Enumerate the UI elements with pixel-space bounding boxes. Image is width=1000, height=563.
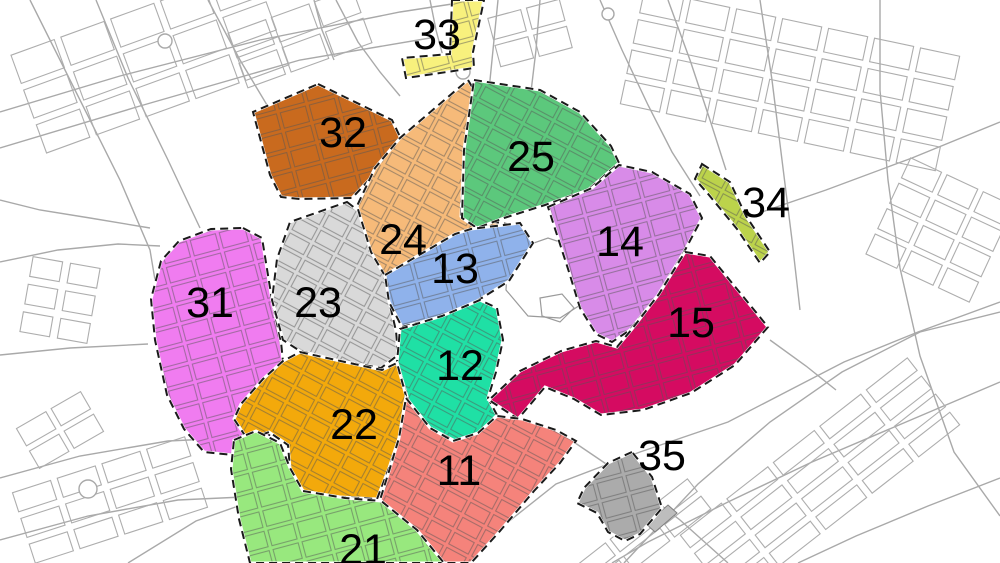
roundabout (158, 34, 172, 48)
city-block-grid (620, 0, 959, 171)
district-map-svg: 312332243325143413121522211135 (0, 0, 1000, 563)
street-line (762, 122, 1000, 212)
region-11-label: 11 (437, 447, 482, 495)
roundabout (602, 8, 614, 20)
city-block-grid (680, 358, 959, 563)
roundabout (79, 480, 97, 498)
region-31-label: 31 (186, 279, 234, 327)
region-24-label: 24 (379, 216, 427, 264)
region-22-label: 22 (330, 401, 378, 449)
region-21-label: 21 (339, 526, 387, 563)
street-line (798, 478, 1000, 563)
street-line (0, 344, 148, 355)
region-35-label: 35 (638, 432, 686, 480)
district-map: 312332243325143413121522211135 (0, 0, 1000, 563)
region-23-label: 23 (294, 279, 342, 327)
street-line (0, 200, 150, 228)
city-block-grid (866, 158, 1000, 302)
region-13-label: 13 (431, 245, 479, 293)
region-34-label: 34 (742, 179, 790, 227)
city-block-grid (20, 257, 100, 344)
street-line (30, 0, 160, 310)
region-12-label: 12 (436, 342, 484, 390)
street-line (0, 244, 160, 262)
region-25-label: 25 (507, 133, 555, 181)
region-15-label: 15 (667, 299, 715, 347)
city-block-grid (16, 392, 103, 469)
street-line (0, 4, 452, 112)
region-14-label: 14 (596, 218, 644, 266)
city-block-grid (11, 0, 289, 153)
region-33-label: 33 (413, 11, 461, 59)
city-block-grid (488, 0, 572, 67)
region-32-label: 32 (319, 109, 367, 157)
